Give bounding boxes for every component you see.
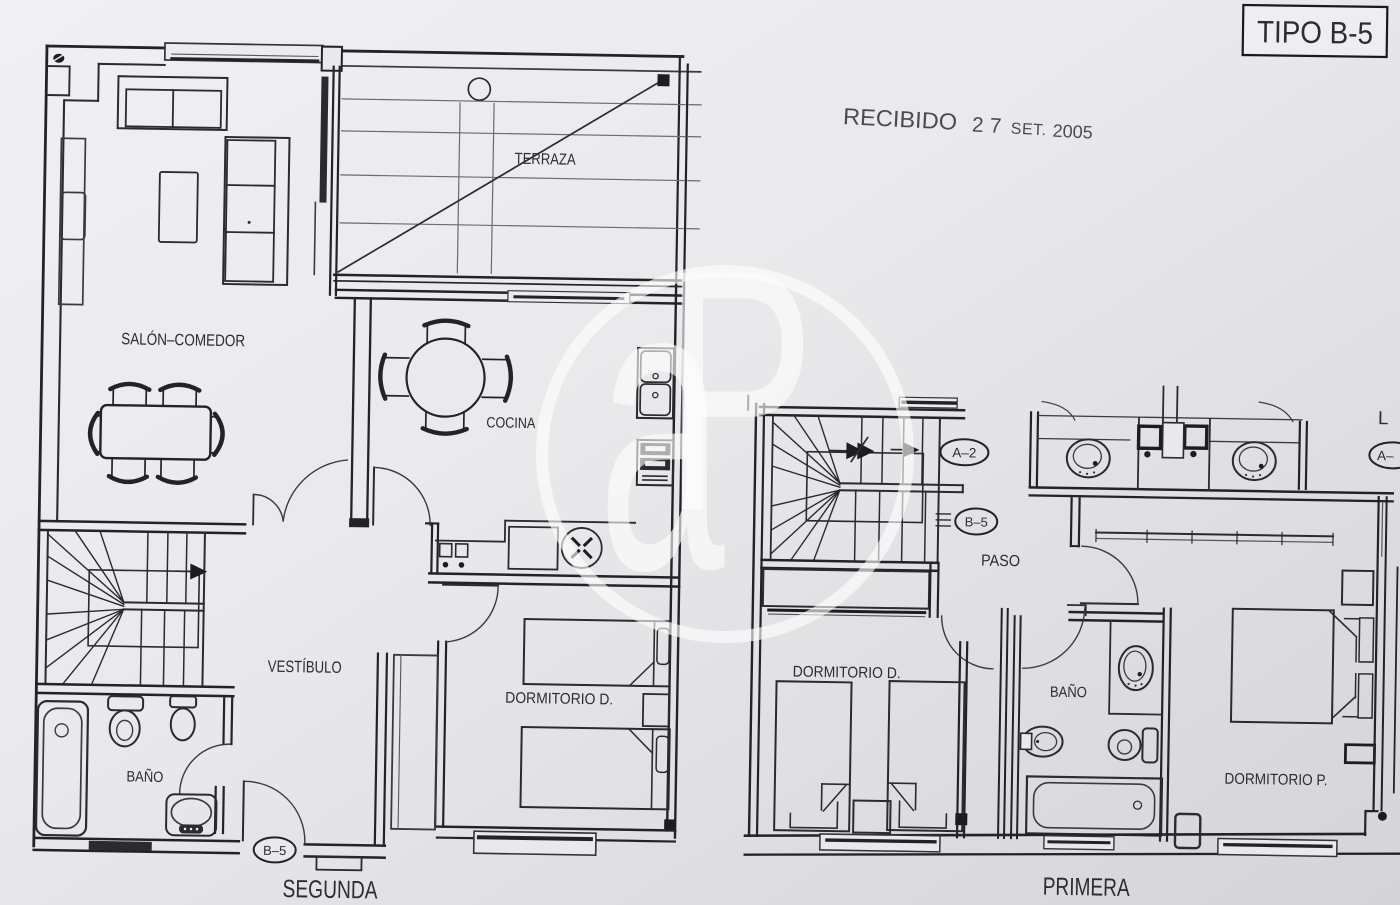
svg-text:DORMITORIO D.: DORMITORIO D. xyxy=(793,663,901,682)
svg-text:TIPO B-5: TIPO B-5 xyxy=(1257,14,1373,51)
svg-text:BAÑO: BAÑO xyxy=(126,768,163,786)
svg-text:VESTÍBULO: VESTÍBULO xyxy=(268,657,342,677)
svg-text:SET.: SET. xyxy=(1010,121,1047,140)
svg-text:DORMITORIO D.: DORMITORIO D. xyxy=(505,690,613,709)
svg-text:DORMITORIO P.: DORMITORIO P. xyxy=(1224,771,1327,790)
svg-text:SEGUNDA: SEGUNDA xyxy=(282,875,378,905)
svg-text:A–: A– xyxy=(1377,448,1394,463)
svg-text:BAÑO: BAÑO xyxy=(1050,684,1087,702)
svg-text:L: L xyxy=(1378,408,1389,429)
svg-text:2005: 2005 xyxy=(1052,121,1093,143)
svg-text:COCINA: COCINA xyxy=(486,414,535,432)
svg-text:SALÓN–COMEDOR: SALÓN–COMEDOR xyxy=(121,329,245,350)
svg-text:PRIMERA: PRIMERA xyxy=(1042,873,1130,902)
svg-text:PASO: PASO xyxy=(981,553,1020,571)
svg-text:B–5: B–5 xyxy=(965,514,988,529)
svg-text:P: P xyxy=(663,198,815,582)
svg-text:7: 7 xyxy=(989,114,1002,138)
svg-text:B–5: B–5 xyxy=(263,843,286,858)
svg-text:2: 2 xyxy=(971,114,984,138)
svg-text:A–2: A–2 xyxy=(952,445,976,460)
svg-text:TERRAZA: TERRAZA xyxy=(515,151,577,169)
